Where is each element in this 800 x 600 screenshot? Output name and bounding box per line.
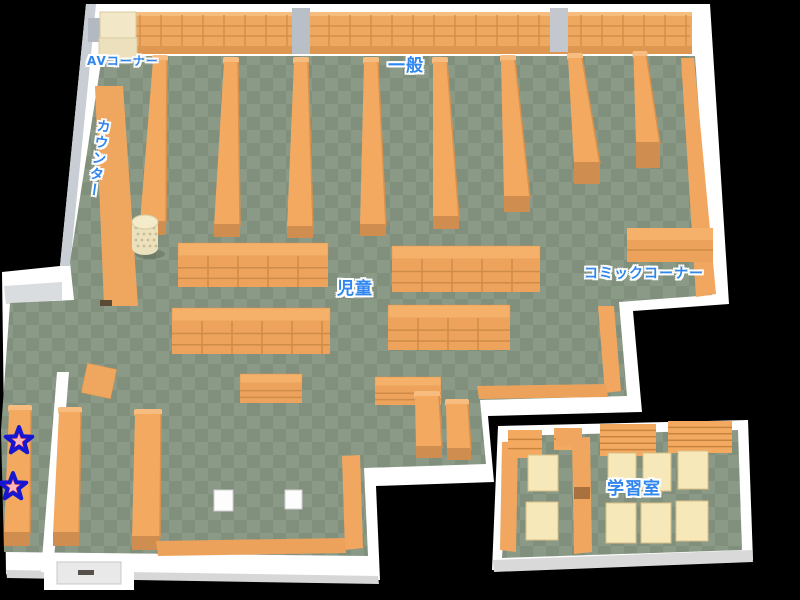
bookshelf-edge (30, 410, 31, 534)
rack-dot (155, 233, 158, 236)
bookshelf-top (392, 246, 540, 259)
rack-dot (147, 239, 150, 242)
divider-gap (574, 487, 590, 499)
bookshelf-edge (166, 60, 167, 223)
counter-end (100, 300, 112, 306)
bookshelf (556, 428, 582, 446)
bookshelf-bottom-edge (134, 46, 692, 54)
wall-shelf (156, 538, 346, 556)
bookshelf-base (287, 226, 313, 238)
bookshelf-base (4, 532, 30, 546)
top-wall-bookshelves (88, 8, 692, 58)
rack-top (132, 215, 158, 229)
wall-pillar (292, 8, 310, 54)
rack-dot (153, 239, 156, 242)
wall-shelf (477, 384, 608, 399)
desk (641, 503, 671, 543)
label-study-room: 学習室 (607, 481, 661, 499)
bookshelf-base (447, 448, 471, 460)
rack-dot (135, 239, 138, 242)
bookshelf (668, 421, 732, 453)
bookshelf (240, 383, 302, 403)
bookshelf (172, 321, 330, 354)
table-top (81, 363, 117, 399)
bookshelf (627, 228, 713, 240)
av-corner-shelf (100, 12, 136, 38)
bookshelf-base (504, 196, 530, 212)
bookshelf-base (53, 532, 79, 546)
label-children-area: 児童 (337, 281, 373, 299)
entrance-mat (78, 570, 94, 575)
table (285, 490, 302, 509)
rack-dot (155, 245, 158, 248)
label-comic-corner: コミックコーナー (584, 267, 704, 282)
bookshelf (600, 424, 656, 456)
rack-dot (149, 233, 152, 236)
desk (528, 455, 558, 491)
table (81, 363, 117, 399)
bookshelf-top (375, 377, 441, 386)
bookshelf (415, 396, 442, 448)
desk (678, 451, 708, 489)
bookshelf (446, 404, 471, 450)
bookshelf-top (172, 308, 330, 321)
comic-corner-shelf (627, 228, 713, 262)
bookshelf (388, 318, 510, 350)
bookshelf-top (388, 305, 510, 318)
desk (606, 503, 636, 543)
bookshelf (178, 256, 328, 287)
bookshelf (392, 259, 540, 292)
rack-dot (141, 239, 144, 242)
bookshelf-base (416, 446, 442, 458)
bookshelf-base (574, 162, 600, 184)
rack-dot (149, 245, 152, 248)
label-general-area: 一般 (388, 58, 424, 76)
bookshelf (508, 430, 542, 458)
bookshelf-top (178, 243, 328, 256)
bookshelf (627, 240, 713, 262)
bookshelf-base (360, 224, 386, 236)
rack-dot (143, 245, 146, 248)
table (214, 490, 233, 511)
bookshelf-base (214, 224, 240, 237)
bookshelf-top (240, 374, 302, 383)
bookshelf (132, 414, 161, 538)
label-av-corner: AVコーナー (87, 55, 159, 68)
bookshelf-base (636, 142, 660, 168)
rack-dot (137, 233, 140, 236)
map-canvas (0, 0, 800, 600)
wall-shelf (342, 455, 363, 550)
library-floor-map: AVコーナー カウンター 一般 児童 コミックコーナー 学習室 (0, 0, 800, 600)
bookshelf-edge (160, 414, 161, 538)
bookshelf-base (433, 216, 459, 229)
desk (526, 502, 558, 540)
entrance-vestibule (44, 556, 134, 590)
desk (676, 501, 708, 541)
wall-pillar (550, 8, 568, 52)
rack-dot (143, 233, 146, 236)
bookshelf-base (132, 536, 160, 550)
rack-dot (137, 245, 140, 248)
